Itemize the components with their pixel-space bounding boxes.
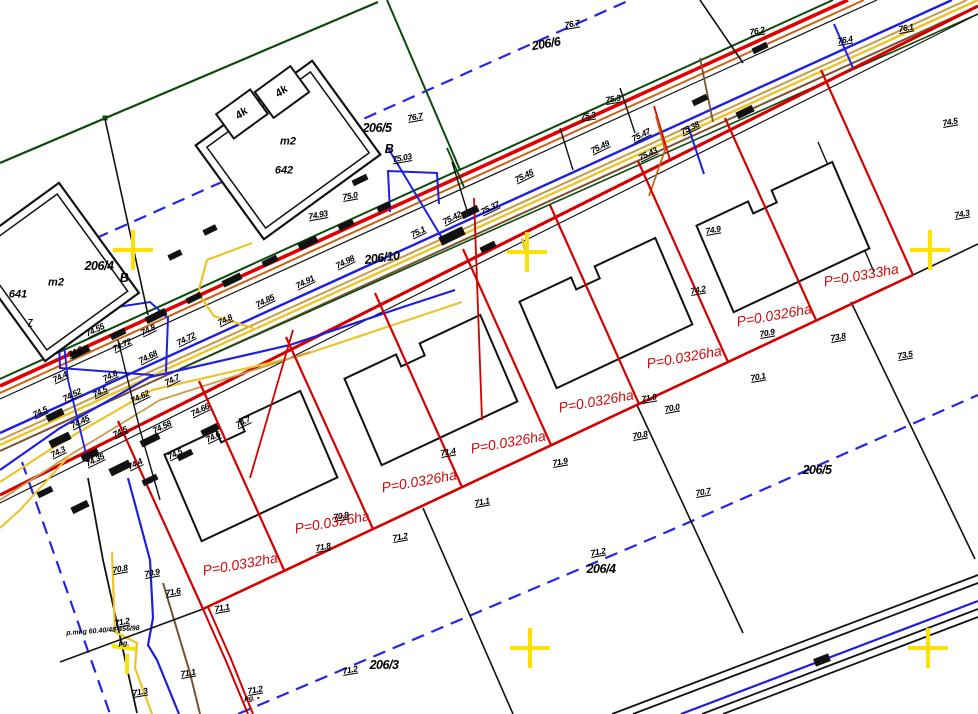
power-line-red (0, 0, 848, 386)
telecom-line-orange (0, 0, 864, 393)
cadastral-boundary-lines (60, 0, 978, 714)
gas-line-green (0, 0, 833, 379)
existing-buildings (0, 61, 380, 361)
map-linework (0, 0, 978, 714)
house-outline (345, 315, 518, 465)
southwest-service-lines (88, 478, 200, 714)
road-bottom-right (612, 575, 978, 714)
house-outline (165, 391, 338, 541)
west-boundary-double-line (203, 609, 248, 714)
cadastral-map-canvas: 206/5B206/6206/10206/4B206/5206/4206/3m2… (0, 0, 978, 714)
house-outline (697, 162, 870, 312)
house-outline (520, 238, 693, 388)
